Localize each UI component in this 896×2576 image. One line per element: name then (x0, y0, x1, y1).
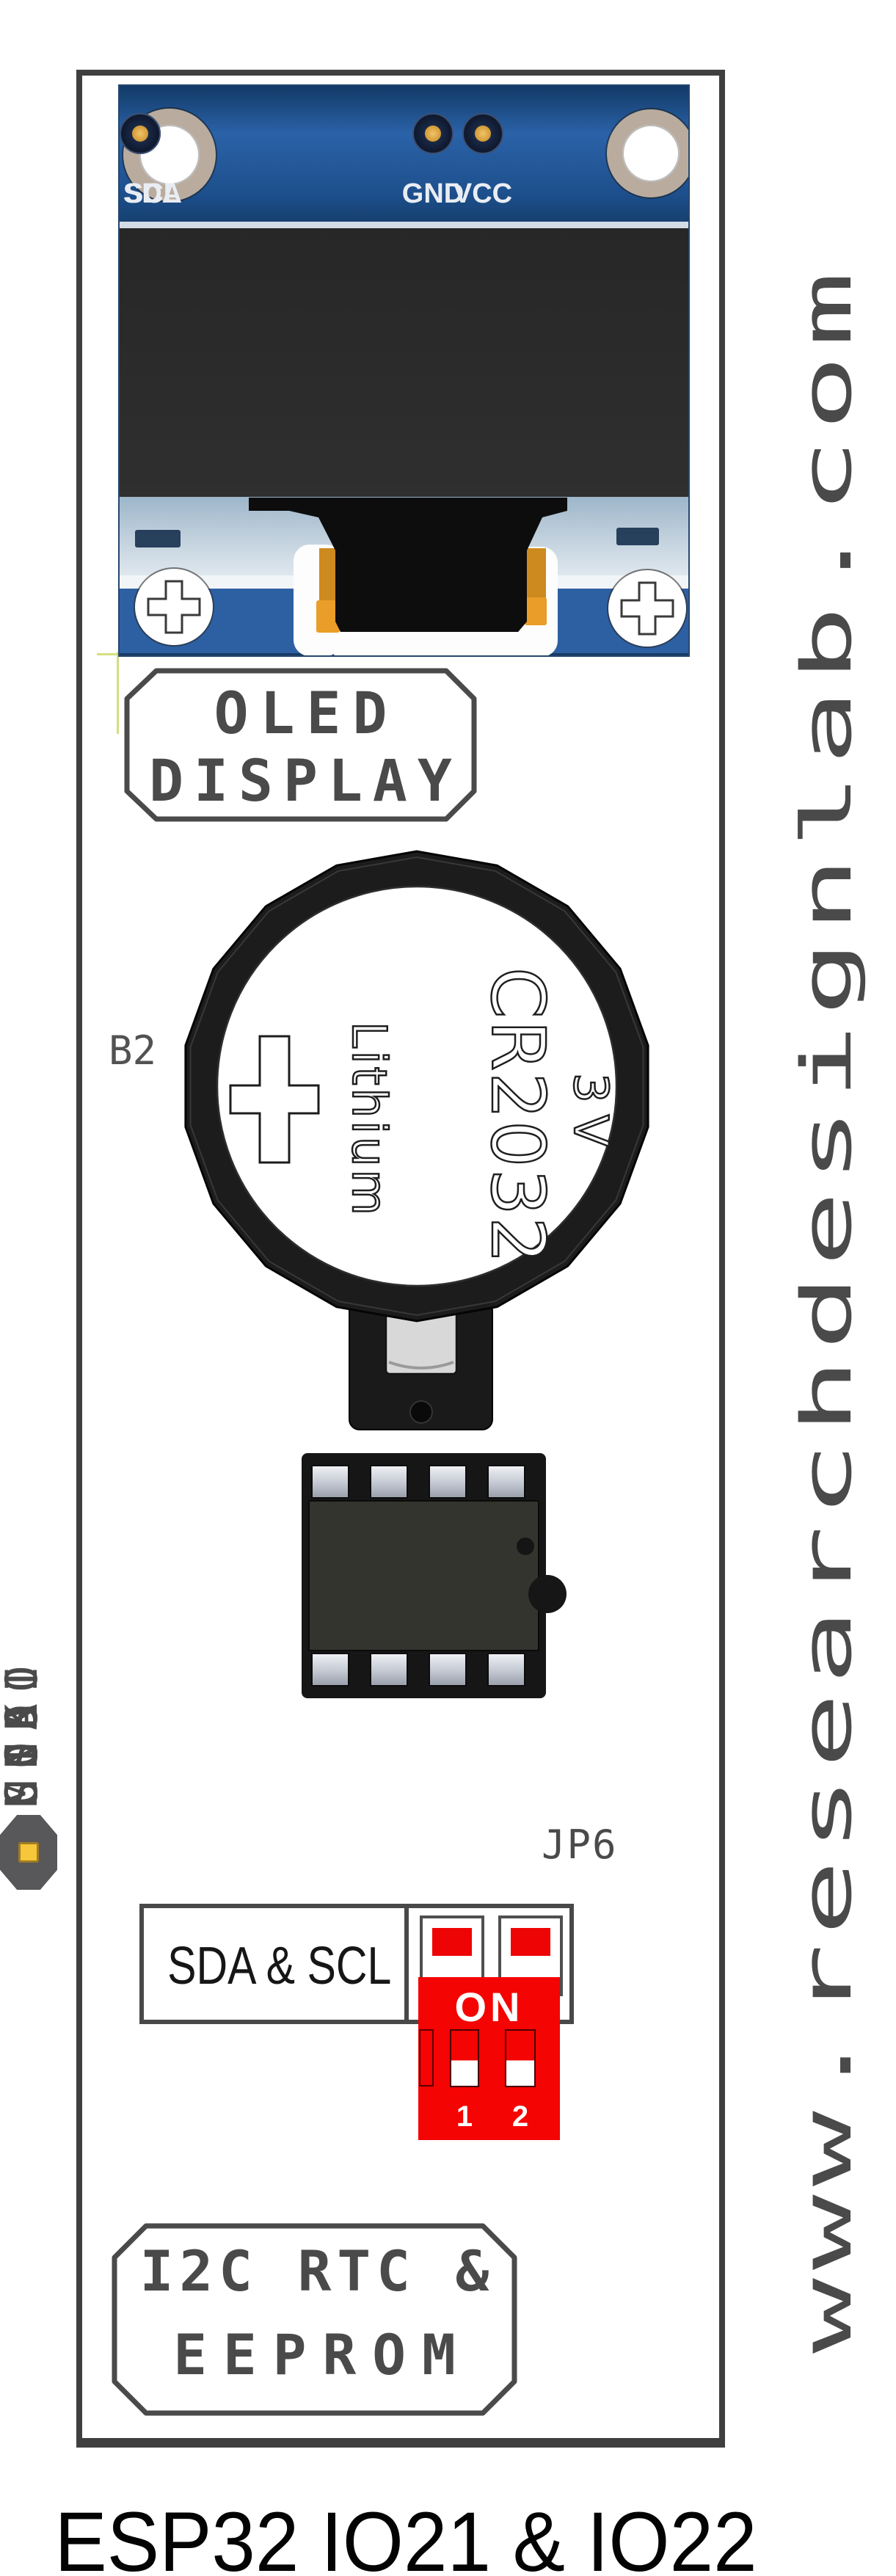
jumper-box-divider (404, 1904, 409, 2024)
battery-model: CR2032 (481, 967, 554, 1265)
header-designator: JP6 (542, 1822, 618, 1868)
dip-switch-slider-2 (505, 2029, 536, 2087)
oled-module-photo: GND VCC SCL SDA (118, 84, 690, 657)
dip-switch-number: 2 (506, 2100, 535, 2133)
ic-body (308, 1500, 539, 1651)
i2c-label-line1: I2C RTC & (114, 2238, 515, 2304)
ic-pin (311, 1653, 349, 1687)
screw-left-icon (135, 569, 213, 645)
battery-chemistry: Lithium (345, 1022, 392, 1218)
oled-display-label-line2: DISPLAY (126, 749, 475, 815)
holder-hole (410, 1401, 432, 1423)
ic-pin1-dot (517, 1538, 534, 1555)
eeprom-ic-chip (302, 1453, 546, 1698)
ic-pin (370, 1653, 408, 1687)
header-pin-label: SCL (0, 1692, 44, 1807)
flex-cable (120, 86, 690, 657)
ic-pin (487, 1465, 525, 1499)
watermark-url: www.researchdesignlab.com (793, 263, 862, 2354)
oled-display-label-line1: OLED (126, 681, 475, 747)
battery-designator: B2 (109, 1027, 156, 1074)
ic-pin (429, 1465, 467, 1499)
dip-switch-slider-1 (450, 2029, 479, 2087)
pcb-annotation-diagram: GND VCC SCL SDA OLED DISPL (0, 0, 896, 2576)
ic-pin (370, 1465, 408, 1499)
ic-pin (311, 1465, 349, 1499)
caption-esp32-pins: ESP32 IO21 & IO22 (29, 2494, 784, 2576)
ic-notch (528, 1575, 567, 1613)
registration-mark-vertical (117, 652, 119, 734)
header-pin-pad (0, 1815, 57, 1890)
dip-switch: ON 1 2 (418, 1977, 560, 2140)
ic-pin (429, 1653, 467, 1687)
ic-pin (487, 1653, 525, 1687)
dip-switch-on-label: ON (418, 1983, 560, 2031)
battery-voltage: 3V (567, 1073, 613, 1159)
jumper-label: SDA & SCL (167, 1936, 382, 1996)
i2c-label-line2: EEPROM (114, 2322, 515, 2387)
dip-switch-notch (419, 2029, 434, 2086)
dip-switch-number: 1 (450, 2100, 479, 2133)
screw-right-icon (608, 570, 686, 647)
